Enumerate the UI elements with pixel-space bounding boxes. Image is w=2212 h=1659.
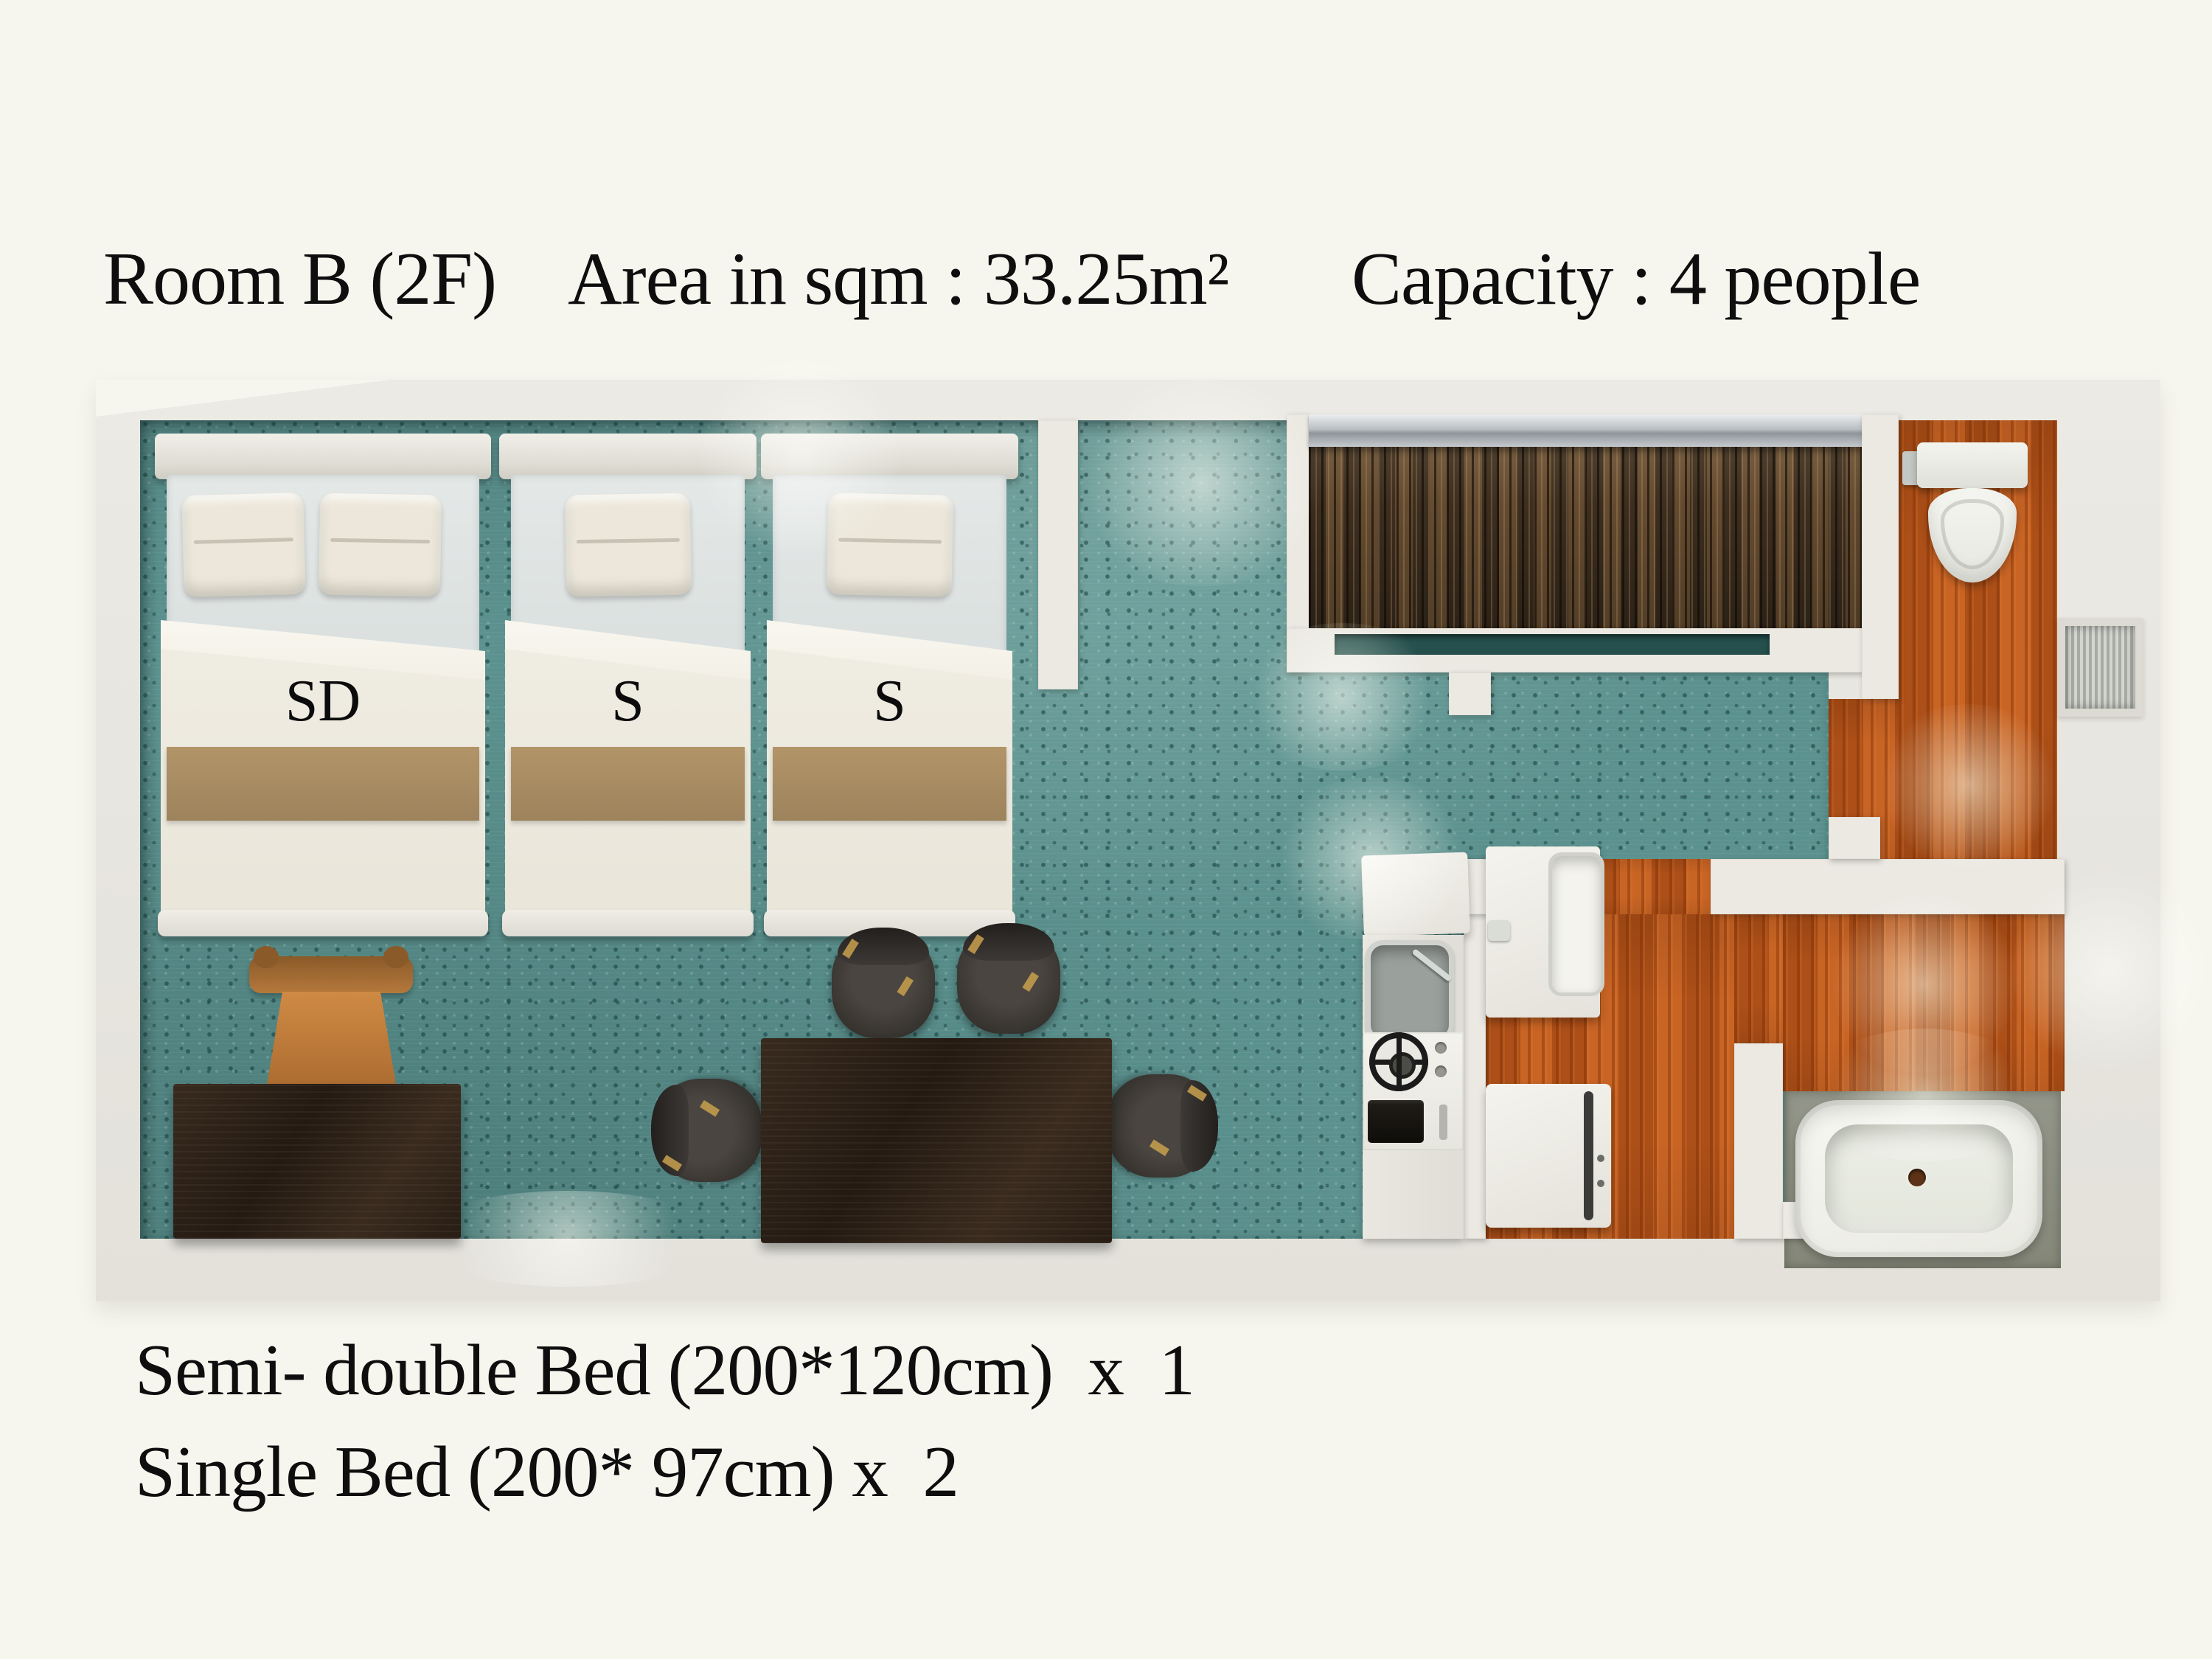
wooden-chair-back	[249, 956, 413, 993]
legend: Semi- double Bed (200*120cm) x 1 Single …	[135, 1320, 1194, 1523]
bedroom-wall-stub	[1038, 420, 1078, 689]
desk	[173, 1084, 461, 1239]
office-chair-left	[658, 1079, 762, 1182]
bed-runner	[167, 747, 479, 821]
left-wall-shadow	[140, 420, 158, 1239]
capacity-label: Capacity : 4 people	[1352, 236, 1920, 322]
bathroom-door-floor	[1734, 914, 1783, 1043]
pillow	[565, 493, 692, 597]
bed-footboard	[502, 910, 754, 936]
partition-band-right	[1711, 859, 2065, 914]
bed-single-1: S	[505, 434, 751, 942]
bed-label: S	[767, 668, 1012, 735]
vanity-basin	[1548, 852, 1604, 996]
washer-door-seam	[1584, 1091, 1593, 1220]
pillow	[827, 493, 954, 597]
bed-runner	[773, 747, 1006, 821]
area-label: Area in sqm : 33.25m²	[568, 236, 1228, 322]
stove-burner-cap	[1389, 1052, 1416, 1079]
floor-plan-page: Room B (2F) Area in sqm : 33.25m² Capaci…	[0, 0, 2212, 1659]
wall-corner-bevel	[96, 380, 391, 417]
bed-headboard	[499, 434, 757, 479]
bed-footboard	[158, 910, 488, 936]
kitchen-sink	[1366, 940, 1454, 1043]
closet-ledge-slot	[1335, 634, 1770, 655]
wooden-chair-seat	[267, 992, 396, 1085]
toilet-door-stub	[1829, 817, 1880, 859]
bed-headboard	[761, 434, 1018, 479]
office-chair-top-left	[832, 935, 935, 1038]
office-chair-top-right	[957, 931, 1060, 1034]
bed-runner	[511, 747, 745, 821]
closet-door-rail	[1309, 414, 1862, 447]
bed-semi-double: SD	[161, 434, 485, 942]
bed-label: SD	[161, 668, 485, 735]
vanity-faucet	[1488, 920, 1510, 941]
bed-single-2: S	[767, 434, 1012, 942]
entrance-right-wall	[1862, 414, 1899, 699]
room-title: Room B (2F)	[103, 236, 496, 322]
floor-plan: SD S S	[96, 380, 2160, 1301]
stove-grill	[1368, 1100, 1424, 1143]
kitchen-cabinet	[1361, 852, 1470, 937]
legend-semi-double: Semi- double Bed (200*120cm) x 1	[135, 1320, 1194, 1422]
stove-burner	[1369, 1032, 1428, 1091]
pillow	[319, 493, 442, 597]
bed-headboard	[155, 434, 491, 479]
ledge-wall-stub	[1449, 672, 1491, 715]
stove-handle	[1439, 1105, 1447, 1140]
stove-knob	[1435, 1042, 1447, 1054]
wall-vent-grille	[2057, 618, 2143, 717]
legend-single: Single Bed (200* 97cm) x 2	[135, 1422, 1194, 1523]
toilet-tank	[1917, 442, 2028, 488]
bathroom-entry-floor	[1783, 914, 2065, 1091]
bed-label: S	[505, 668, 751, 735]
pillow	[181, 493, 306, 597]
stove-knob	[1435, 1065, 1447, 1077]
office-chair-right	[1107, 1074, 1211, 1178]
closet-wood-doors	[1309, 447, 1862, 628]
dining-table	[761, 1038, 1112, 1243]
bathtub-drain	[1908, 1169, 1926, 1186]
bathroom-divider-wall	[1734, 1043, 1783, 1239]
